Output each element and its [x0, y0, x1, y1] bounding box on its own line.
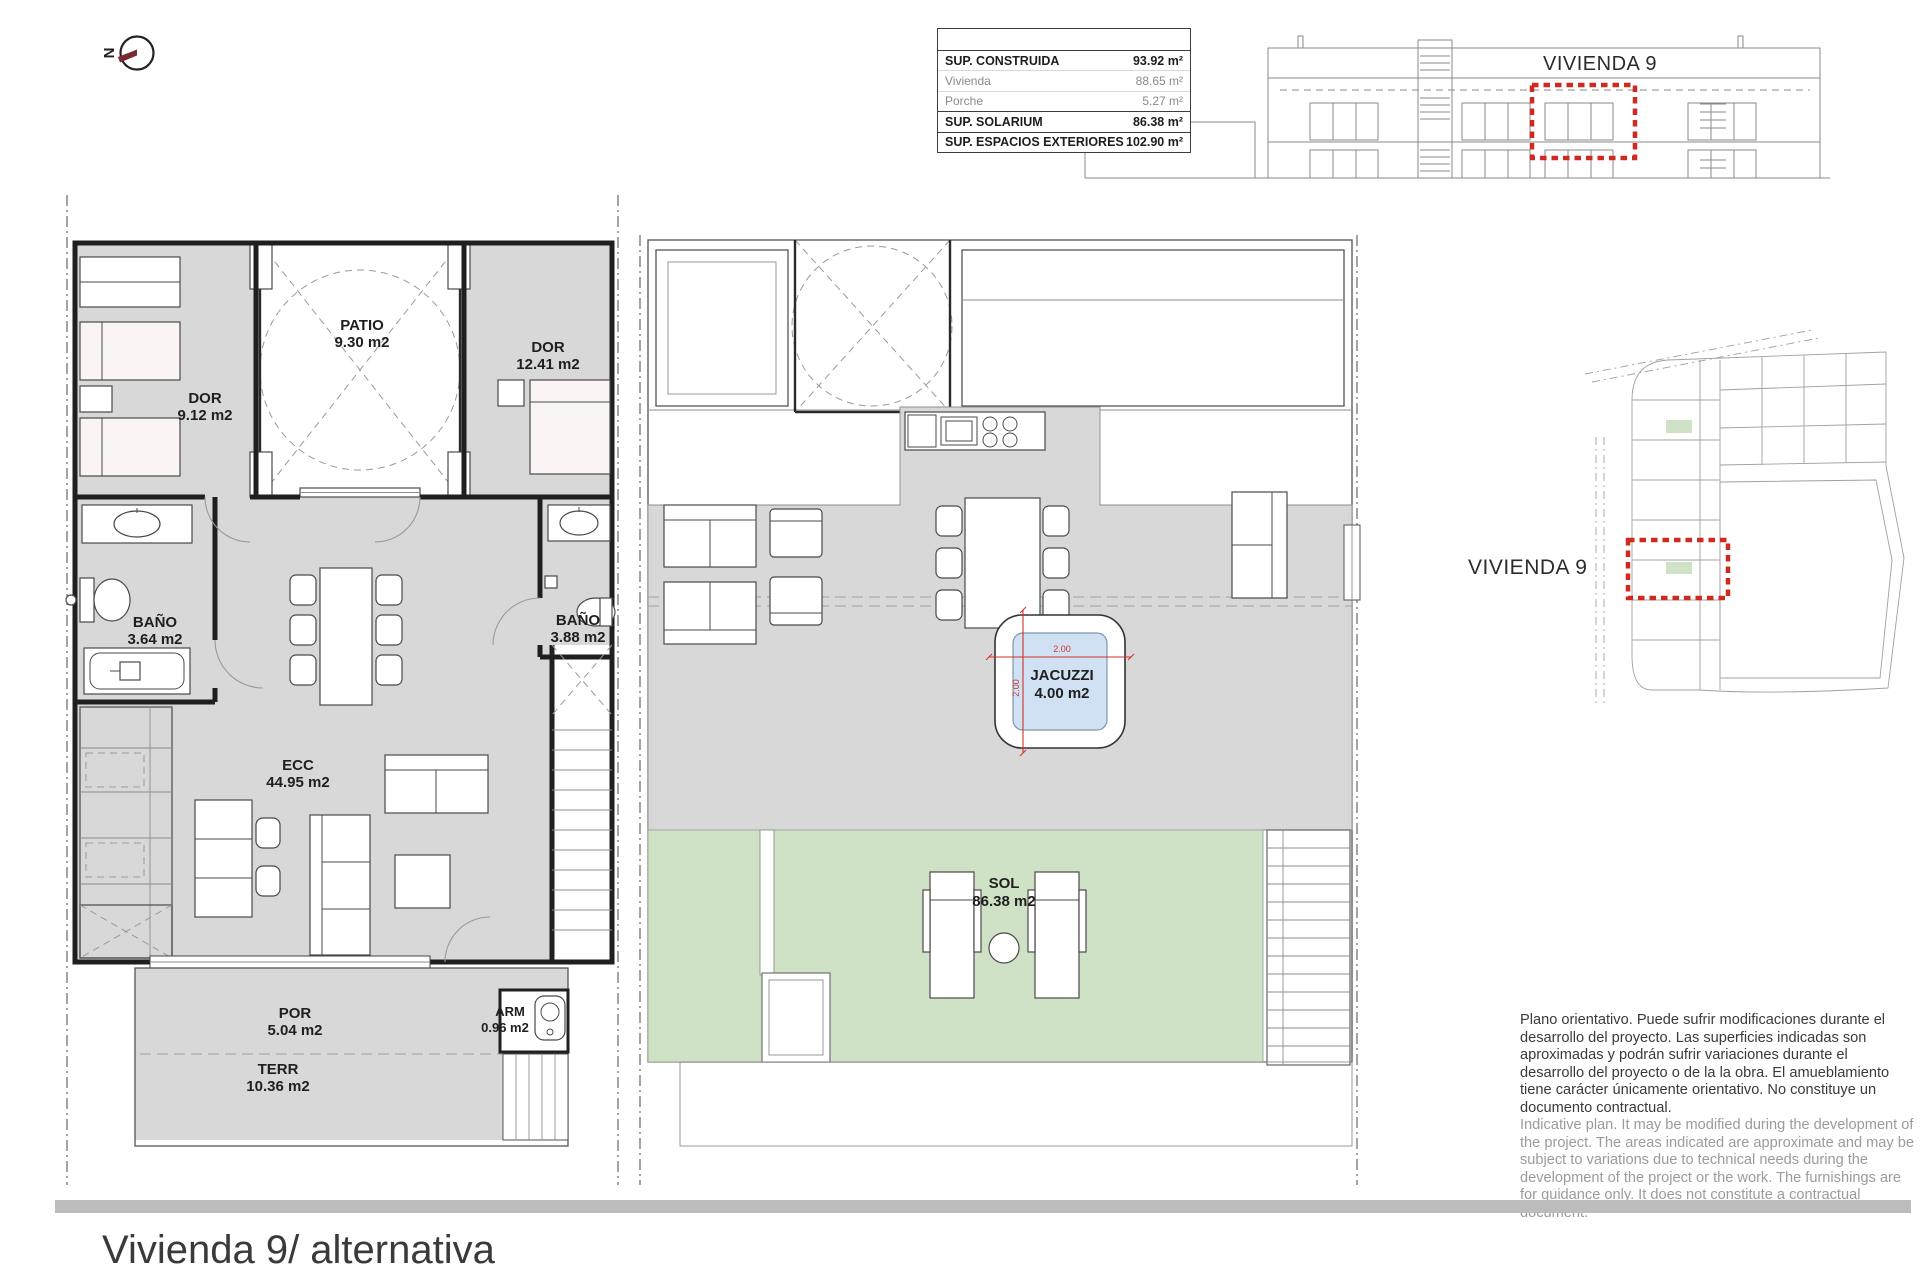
areas-row-value: 93.92 m² [1133, 54, 1183, 68]
areas-row-construida: SUP. CONSTRUIDA 93.92 m² [938, 51, 1190, 70]
room-label-patio-area: 9.30 m2 [334, 334, 389, 351]
areas-row-solarium: SUP. SOLARIUM 86.38 m² [938, 111, 1190, 131]
jacuzzi: 2.00 2.00 JACUZZI 4.00 m2 [986, 607, 1134, 756]
room-label-dor1-name: DOR [188, 390, 222, 407]
jacuzzi-width-dim: 2.00 [1053, 644, 1071, 654]
north-arrow-icon: N [101, 37, 154, 70]
areas-table: SUP. CONSTRUIDA 93.92 m² Vivienda 88.65 … [937, 28, 1191, 153]
room-label-ecc-area: 44.95 m2 [266, 774, 329, 791]
areas-row-value: 102.90 m² [1126, 135, 1183, 149]
jacuzzi-height-dim: 2.00 [1011, 679, 1021, 697]
areas-row-label: Vivienda [945, 74, 991, 88]
areas-row-value: 88.65 m² [1136, 74, 1183, 88]
room-label-sol-area: 86.38 m2 [972, 893, 1035, 910]
disclaimer-text: Plano orientativo. Puede sufrir modifica… [1520, 1012, 1914, 1222]
areas-row-exteriores: SUP. ESPACIOS EXTERIORES 102.90 m² [938, 132, 1190, 152]
room-label-por-area: 5.04 m2 [267, 1022, 322, 1039]
areas-row-value: 86.38 m² [1133, 115, 1183, 129]
room-label-bano1-name: BAÑO [133, 613, 177, 631]
room-label-arm-name: ARM [495, 1004, 525, 1019]
sun-lounger [930, 872, 974, 998]
site-green-patch [1666, 562, 1692, 574]
solarium-patio-void [792, 240, 952, 412]
areas-row-vivienda: Vivienda 88.65 m² [938, 70, 1190, 90]
areas-row-label: SUP. ESPACIOS EXTERIORES [945, 135, 1124, 149]
room-label-arm-area: 0.96 m2 [481, 1020, 529, 1035]
elevation-stair-hatch-2 [1700, 104, 1726, 168]
room-label-patio-name: PATIO [340, 317, 384, 334]
areas-table-header [938, 29, 1190, 51]
room-label-terr-name: TERR [258, 1061, 299, 1078]
room-label-ecc-name: ECC [282, 757, 314, 774]
sun-lounger [1035, 872, 1079, 998]
room-label-bano1-area: 3.64 m2 [127, 631, 182, 648]
north-label: N [101, 48, 118, 59]
room-label-jacuzzi-area: 4.00 m2 [1034, 685, 1089, 702]
site-vivienda-label: VIVIENDA 9 [1468, 556, 1587, 580]
areas-row-value: 5.27 m² [1142, 94, 1183, 108]
solarium-plan: 2.00 2.00 JACUZZI 4.00 m2 SOL 86.38 m2 [640, 235, 1360, 1185]
room-label-bano2-area: 3.88 m2 [550, 629, 605, 646]
side-table [989, 933, 1019, 963]
areas-row-porche: Porche 5.27 m² [938, 91, 1190, 111]
room-label-jacuzzi-name: JACUZZI [1030, 667, 1093, 684]
solarium-green-area: SOL 86.38 m2 [648, 830, 1263, 1062]
room-label-dor1-area: 9.12 m2 [177, 407, 232, 424]
areas-row-label: Porche [945, 94, 983, 108]
areas-row-label: SUP. SOLARIUM [945, 115, 1043, 129]
room-label-dor2-area: 12.41 m2 [516, 356, 579, 373]
solarium-stairs [1267, 830, 1350, 1065]
elevation-highlight-box [1532, 85, 1635, 158]
sheet-title: Vivienda 9/ alternativa [102, 1228, 495, 1273]
room-label-dor2-name: DOR [531, 339, 565, 356]
outdoor-kitchen [905, 412, 1045, 450]
elevation-vivienda-label: VIVIENDA 9 [1543, 53, 1657, 76]
room-label-terr-area: 10.36 m2 [246, 1078, 309, 1095]
solarium-dining-table [936, 498, 1069, 628]
site-plan [1585, 330, 1904, 705]
entry-steps [503, 1054, 568, 1140]
floor-plan-sheet: N [0, 0, 1920, 1280]
room-label-sol-name: SOL [989, 875, 1020, 892]
elevation-windows-lower [1310, 150, 1756, 178]
areas-row-label: SUP. CONSTRUIDA [945, 54, 1059, 68]
elevation-drawing [1085, 36, 1830, 178]
ground-floor-plan: DOR 9.12 m2 PATIO 9.30 m2 DOR 12.41 m2 B… [66, 195, 618, 1185]
porch-terrace [135, 968, 568, 1146]
footer-divider-bar [55, 1200, 1911, 1213]
elevation-stair-hatch [1420, 56, 1450, 171]
site-green-patch [1666, 420, 1692, 433]
bedroom1-furniture [80, 257, 180, 476]
disclaimer-spanish: Plano orientativo. Puede sufrir modifica… [1520, 1012, 1914, 1117]
room-label-por-name: POR [279, 1005, 312, 1022]
room-label-bano2-name: BAÑO [556, 611, 600, 629]
